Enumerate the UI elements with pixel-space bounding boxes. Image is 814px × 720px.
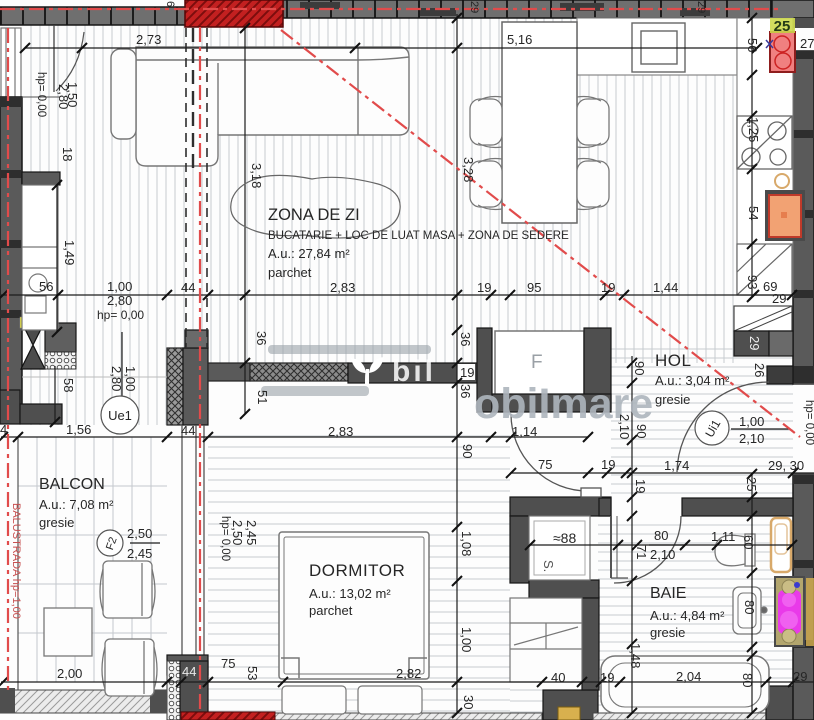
svg-text:75: 75 — [538, 457, 552, 472]
svg-text:2,80: 2,80 — [107, 293, 132, 308]
svg-text:1,11: 1,11 — [711, 529, 735, 544]
svg-text:27: 27 — [800, 36, 814, 51]
svg-text:90: 90 — [634, 424, 649, 438]
svg-text:4: 4 — [0, 422, 7, 437]
svg-text:56: 56 — [745, 38, 760, 52]
svg-text:2,04: 2,04 — [676, 669, 701, 684]
svg-text:44: 44 — [181, 280, 195, 295]
svg-text:bil: bil — [392, 355, 436, 388]
svg-text:1,49: 1,49 — [62, 240, 77, 265]
svg-text:2,80: 2,80 — [56, 84, 71, 109]
svg-text:5,16: 5,16 — [507, 32, 532, 47]
svg-text:75: 75 — [221, 656, 235, 671]
svg-text:BUCATARIE + LOC DE LUAT MASA +: BUCATARIE + LOC DE LUAT MASA + ZONA DE S… — [268, 230, 569, 242]
svg-text:2,45: 2,45 — [244, 520, 259, 545]
svg-text:2,50: 2,50 — [230, 520, 245, 545]
svg-text:40: 40 — [551, 670, 565, 685]
svg-text:29: 29 — [747, 336, 762, 350]
svg-text:1,00: 1,00 — [459, 627, 474, 652]
svg-text:29, 30: 29, 30 — [768, 458, 804, 473]
svg-text:1,08: 1,08 — [459, 531, 474, 556]
svg-text:ZONA DE ZI: ZONA DE ZI — [268, 206, 360, 224]
svg-text:1,00: 1,00 — [107, 279, 132, 294]
svg-text:2,80: 2,80 — [109, 366, 124, 391]
svg-text:3,28: 3,28 — [461, 157, 476, 182]
svg-text:19: 19 — [633, 479, 648, 493]
svg-text:BALCON: BALCON — [39, 476, 105, 493]
svg-text:Ue1: Ue1 — [108, 408, 132, 423]
svg-text:hp= 0,00: hp= 0,00 — [803, 400, 814, 445]
svg-text:1,56: 1,56 — [66, 422, 91, 437]
svg-text:56: 56 — [39, 279, 53, 294]
svg-text:26: 26 — [752, 363, 767, 377]
svg-text:36: 36 — [254, 331, 269, 345]
svg-text:44: 44 — [181, 423, 195, 438]
svg-text:93: 93 — [745, 275, 760, 289]
svg-text:58: 58 — [61, 378, 76, 392]
svg-text:A.u.: 4,84 m²: A.u.: 4,84 m² — [650, 608, 725, 623]
svg-text:1,44: 1,44 — [653, 280, 678, 295]
svg-text:1,74: 1,74 — [664, 458, 689, 473]
svg-text:51: 51 — [255, 390, 270, 404]
svg-text:1,00: 1,00 — [123, 366, 138, 391]
svg-text:19: 19 — [601, 457, 615, 472]
svg-text:1,00: 1,00 — [739, 414, 764, 429]
svg-text:95: 95 — [527, 280, 541, 295]
svg-text:A.u.: 27,84 m²: A.u.: 27,84 m² — [268, 246, 350, 261]
svg-text:90: 90 — [460, 444, 475, 458]
svg-text:36: 36 — [458, 332, 473, 346]
svg-text:44: 44 — [182, 664, 196, 679]
svg-text:S.: S. — [541, 560, 556, 572]
svg-text:1,25: 1,25 — [746, 117, 761, 142]
svg-text:A.u.: 13,02 m²: A.u.: 13,02 m² — [309, 586, 391, 601]
svg-text:2,00: 2,00 — [57, 666, 82, 681]
svg-text:gresie: gresie — [39, 515, 74, 530]
svg-text:29: 29 — [793, 669, 807, 684]
svg-text:53: 53 — [245, 666, 260, 680]
svg-text:parchet: parchet — [309, 603, 353, 618]
svg-text:36: 36 — [458, 384, 473, 398]
svg-text:2,10: 2,10 — [617, 414, 632, 439]
svg-text:A.u.: 7,08 m²: A.u.: 7,08 m² — [39, 497, 114, 512]
svg-text:60: 60 — [741, 535, 756, 549]
svg-text:18: 18 — [60, 147, 75, 161]
svg-text:1,48: 1,48 — [628, 643, 643, 668]
svg-text:25: 25 — [744, 477, 759, 491]
svg-text:2,82: 2,82 — [396, 666, 421, 681]
svg-text:19: 19 — [600, 670, 614, 685]
svg-text:gresie: gresie — [650, 625, 685, 640]
svg-text:2,83: 2,83 — [328, 424, 353, 439]
svg-text:80: 80 — [740, 673, 755, 687]
svg-text:80: 80 — [654, 528, 668, 543]
svg-text:71: 71 — [634, 545, 649, 559]
svg-text:29: 29 — [772, 291, 786, 306]
svg-text:2,83: 2,83 — [330, 280, 355, 295]
svg-text:1,14: 1,14 — [512, 424, 537, 439]
svg-text:2,73: 2,73 — [136, 32, 161, 47]
svg-text:F: F — [531, 352, 543, 373]
svg-text:2,50: 2,50 — [127, 526, 152, 541]
svg-text:parchet: parchet — [268, 265, 312, 280]
svg-text:25: 25 — [774, 18, 791, 35]
svg-text:80: 80 — [742, 600, 757, 614]
svg-text:BALUSTRADA hp=1,00: BALUSTRADA hp=1,00 — [10, 503, 22, 619]
svg-text:19: 19 — [477, 280, 491, 295]
svg-text:DORMITOR: DORMITOR — [309, 561, 405, 580]
svg-text:2,10: 2,10 — [650, 547, 675, 562]
svg-text:6: 6 — [164, 1, 176, 7]
svg-text:29: 29 — [695, 1, 707, 13]
svg-text:A.u.: 3,04 m²: A.u.: 3,04 m² — [655, 373, 730, 388]
svg-text:≈88: ≈88 — [553, 530, 576, 546]
svg-text:2,45: 2,45 — [127, 546, 152, 561]
svg-text:3,18: 3,18 — [249, 163, 264, 188]
svg-text:gresie: gresie — [655, 392, 690, 407]
svg-text:90: 90 — [632, 361, 647, 375]
svg-text:19: 19 — [460, 365, 474, 380]
svg-text:30: 30 — [461, 695, 476, 709]
svg-text:hp= 0,00: hp= 0,00 — [97, 308, 144, 322]
svg-text:2,10: 2,10 — [739, 431, 764, 446]
svg-text:BAIE: BAIE — [650, 585, 686, 602]
svg-text:hp= 0,00: hp= 0,00 — [219, 516, 231, 561]
svg-text:29: 29 — [468, 1, 480, 13]
svg-text:hp= 0,00: hp= 0,00 — [35, 72, 47, 117]
svg-text:54: 54 — [746, 206, 761, 220]
svg-text:HOL: HOL — [655, 351, 691, 370]
svg-text:19: 19 — [601, 280, 615, 295]
